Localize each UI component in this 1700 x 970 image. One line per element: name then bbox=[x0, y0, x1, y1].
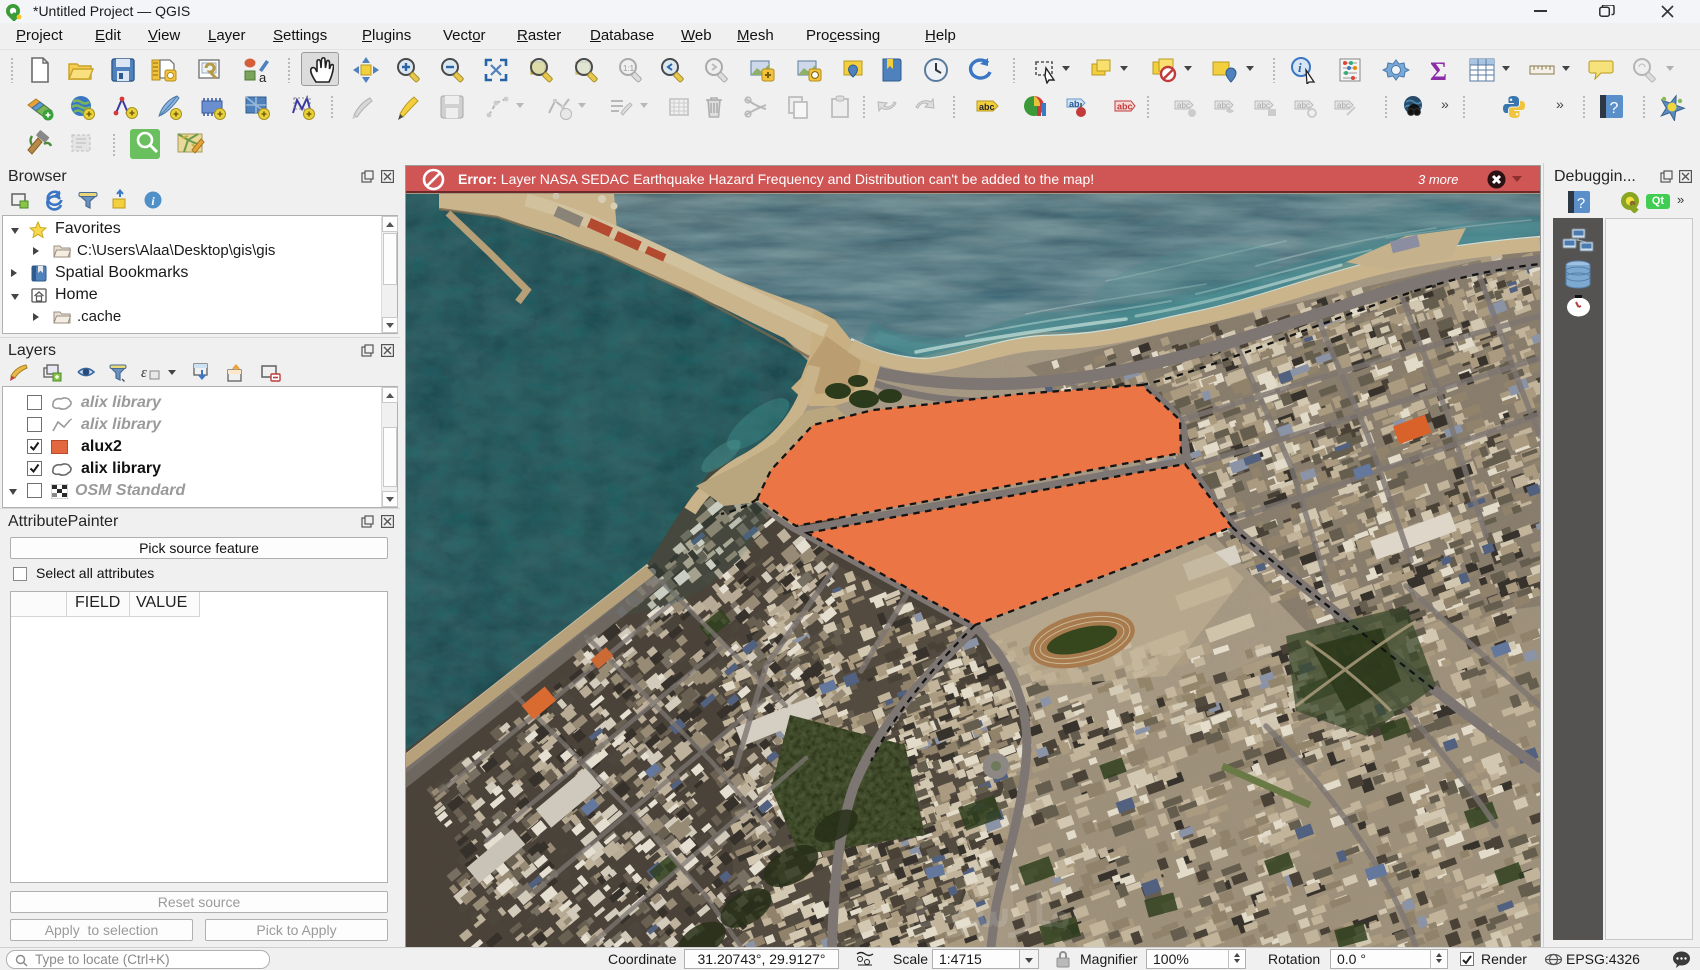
svg-text:abc: abc bbox=[1337, 101, 1350, 110]
svg-text:abc: abc bbox=[979, 102, 995, 112]
svg-text:?: ? bbox=[1577, 195, 1585, 212]
svg-text:?: ? bbox=[1610, 100, 1619, 117]
svg-text:abc: abc bbox=[1297, 101, 1310, 110]
svg-text:1:1: 1:1 bbox=[623, 64, 635, 73]
svg-text:مارسو ٤: مارسو ٤ bbox=[911, 884, 1072, 938]
svg-text:abc: abc bbox=[1257, 101, 1270, 110]
svg-text:ε: ε bbox=[141, 365, 147, 381]
svg-text:i: i bbox=[1298, 60, 1302, 75]
svg-text:abc: abc bbox=[1217, 101, 1230, 110]
svg-text:ab: ab bbox=[1069, 99, 1080, 109]
svg-text:abc: abc bbox=[1117, 102, 1133, 112]
svg-text:abc: abc bbox=[1177, 101, 1190, 110]
svg-text:Σ: Σ bbox=[1430, 57, 1447, 84]
svg-text:a: a bbox=[259, 70, 267, 84]
